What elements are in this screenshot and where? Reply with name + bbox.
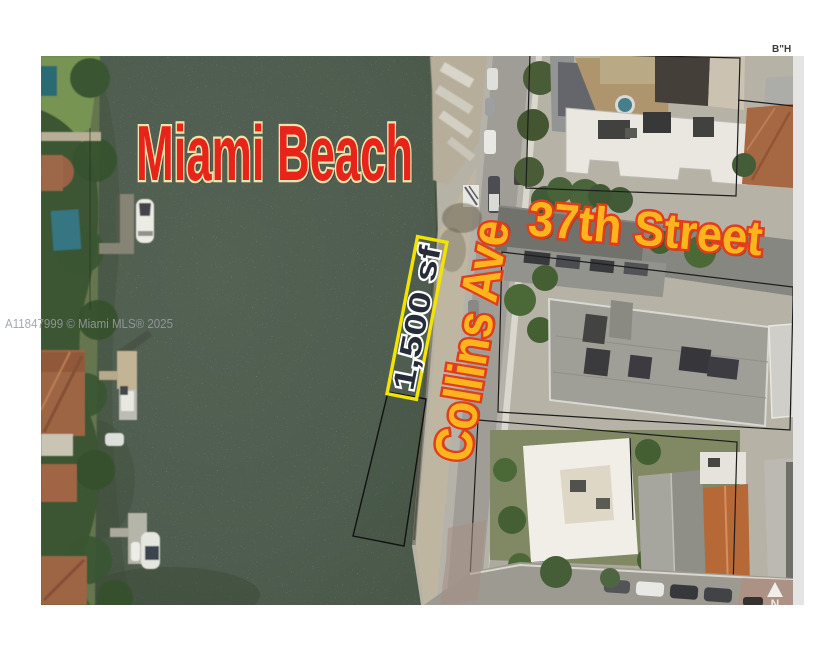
svg-text:Miami Beach: Miami Beach bbox=[136, 109, 413, 197]
svg-text:A11847999 © Miami MLS® 2025: A11847999 © Miami MLS® 2025 bbox=[5, 317, 173, 331]
svg-text:B"H: B"H bbox=[772, 44, 791, 55]
